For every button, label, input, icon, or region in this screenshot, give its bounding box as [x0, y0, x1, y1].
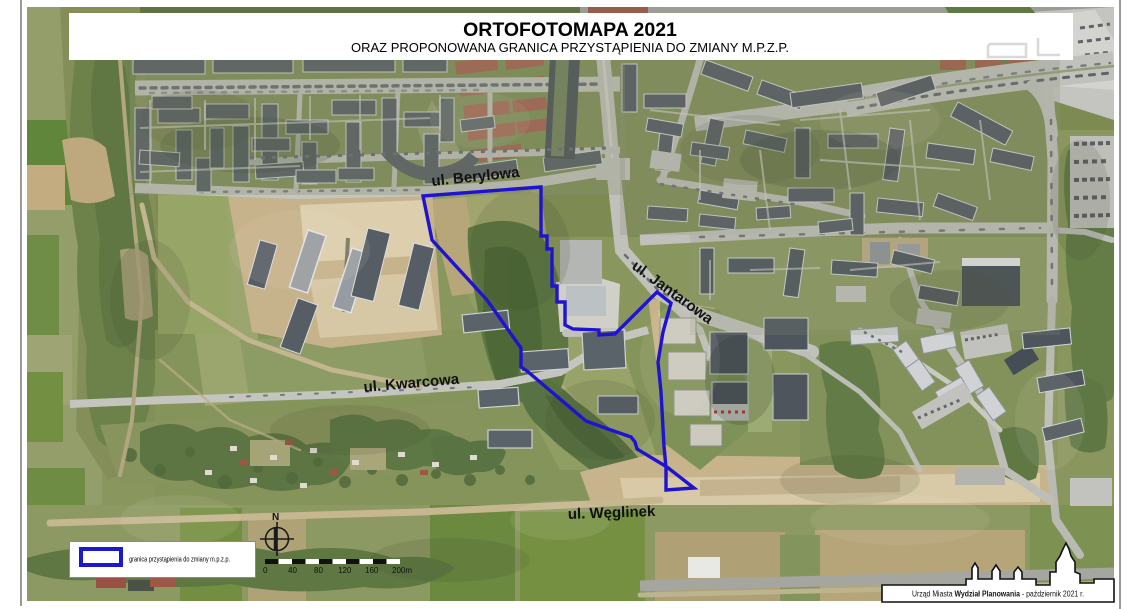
svg-text:40: 40	[288, 566, 297, 575]
svg-text:ul. Węglinek: ul. Węglinek	[568, 503, 657, 523]
svg-text:N: N	[272, 512, 279, 523]
svg-text:200m: 200m	[392, 566, 412, 575]
svg-text:Urząd Miasta Wydział Planowani: Urząd Miasta Wydział Planowania - paździ…	[912, 590, 1084, 599]
svg-text:120: 120	[338, 566, 352, 575]
svg-text:granica przystąpienia do zmian: granica przystąpienia do zmiany m.p.z.p.	[129, 557, 230, 564]
svg-text:ORTOFOTOMAPA 2021: ORTOFOTOMAPA 2021	[463, 19, 677, 41]
svg-text:160: 160	[365, 566, 379, 575]
svg-text:ORAZ PROPONOWANA GRANICA PRZ: ORAZ PROPONOWANA GRANICA PRZYSTĄPIENIA D…	[351, 40, 789, 55]
svg-text:0: 0	[263, 566, 268, 575]
svg-text:80: 80	[314, 566, 323, 575]
